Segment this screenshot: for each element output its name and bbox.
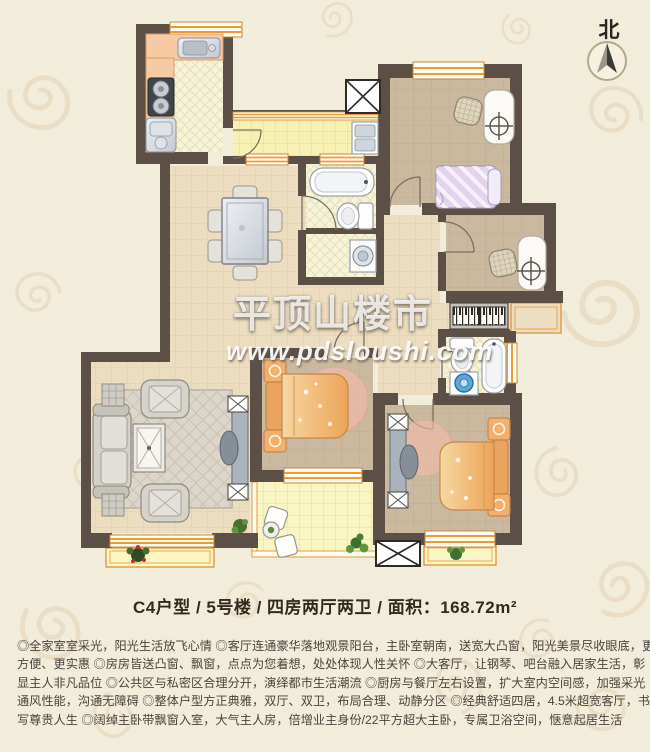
bedroom-top-window — [413, 62, 484, 79]
desk-icon — [484, 90, 514, 144]
description-line: ◎全家室室采光，阳光生活放飞心情 ◎客厅连通豪华落地观景阳台，主卧室朝南，送宽大… — [17, 637, 639, 655]
toilet-icon — [337, 203, 373, 229]
side-table-icon — [102, 384, 124, 406]
armchair2-icon — [141, 484, 189, 522]
plan-title: C4户型 / 5号楼 / 四房两厅两卫 / 面积：168.72m² — [0, 593, 650, 618]
study-bay-window — [511, 303, 561, 333]
single-bed-icon — [436, 166, 501, 208]
watermark-brand: 平顶山楼市 — [233, 294, 453, 336]
north-label: 北 — [597, 14, 621, 44]
living-bay-window — [106, 548, 214, 567]
coffee-table-icon — [133, 424, 165, 472]
living-window — [110, 535, 214, 547]
duct-shaft-bottom — [376, 541, 420, 566]
study-chair-icon — [488, 248, 519, 279]
corridor-inner-window-2 — [320, 154, 364, 165]
description-line: 写尊贵人生 ◎阔绰主卧带飘窗入室，大气主人房，倍增业主身份/22平方超大主卧，专… — [17, 711, 639, 729]
balcony-stool2-icon — [274, 534, 298, 558]
kitchen-sink-icon — [178, 38, 220, 58]
armchair-icon — [141, 380, 189, 418]
description-line: 通风性能，沟通无障碍 ◎整体户型方正典雅，双厅、双卫，布局合理、动静分区 ◎经典… — [17, 692, 639, 710]
washing-machine-icon — [350, 240, 376, 272]
side-table2-icon — [102, 494, 124, 516]
study-desk-icon — [517, 236, 546, 290]
compass-icon — [588, 42, 626, 80]
bedroom-master-window — [425, 531, 495, 547]
bedroom-middle-window — [284, 468, 362, 483]
kitchen-sink2-icon — [146, 118, 176, 152]
description-line: 方便、更实惠 ◎房房皆送凸窗、飘窗，点点为您着想，处处体现人性关怀 ◎大客厅，让… — [17, 655, 639, 673]
round-sink-icon — [450, 372, 478, 395]
piano-icon — [450, 303, 508, 329]
watermark-url: www.pdsloushi.com — [226, 336, 456, 367]
bed-middle-icon — [264, 360, 348, 452]
stove-icon — [148, 78, 174, 116]
duct-shaft-top — [346, 80, 380, 113]
sofa-icon — [93, 404, 131, 498]
description-block: ◎全家室室采光，阳光生活放飞心情 ◎客厅连通豪华落地观景阳台，主卧室朝南，送宽大… — [17, 637, 639, 729]
bathtub-icon — [310, 168, 374, 196]
balcony-table-icon — [263, 522, 279, 538]
corridor-inner-window-1 — [246, 154, 288, 165]
description-line: 显主人非凡品位 ◎公共区与私密区合理分开，演绎都市生活潮流 ◎厨房与餐厅左右设置… — [17, 674, 639, 692]
floorplan-page: 北 平顶山楼市 www.pdsloushi.com C4户型 / 5号楼 / 四… — [0, 0, 650, 752]
vanity-basin-icon — [352, 122, 378, 154]
